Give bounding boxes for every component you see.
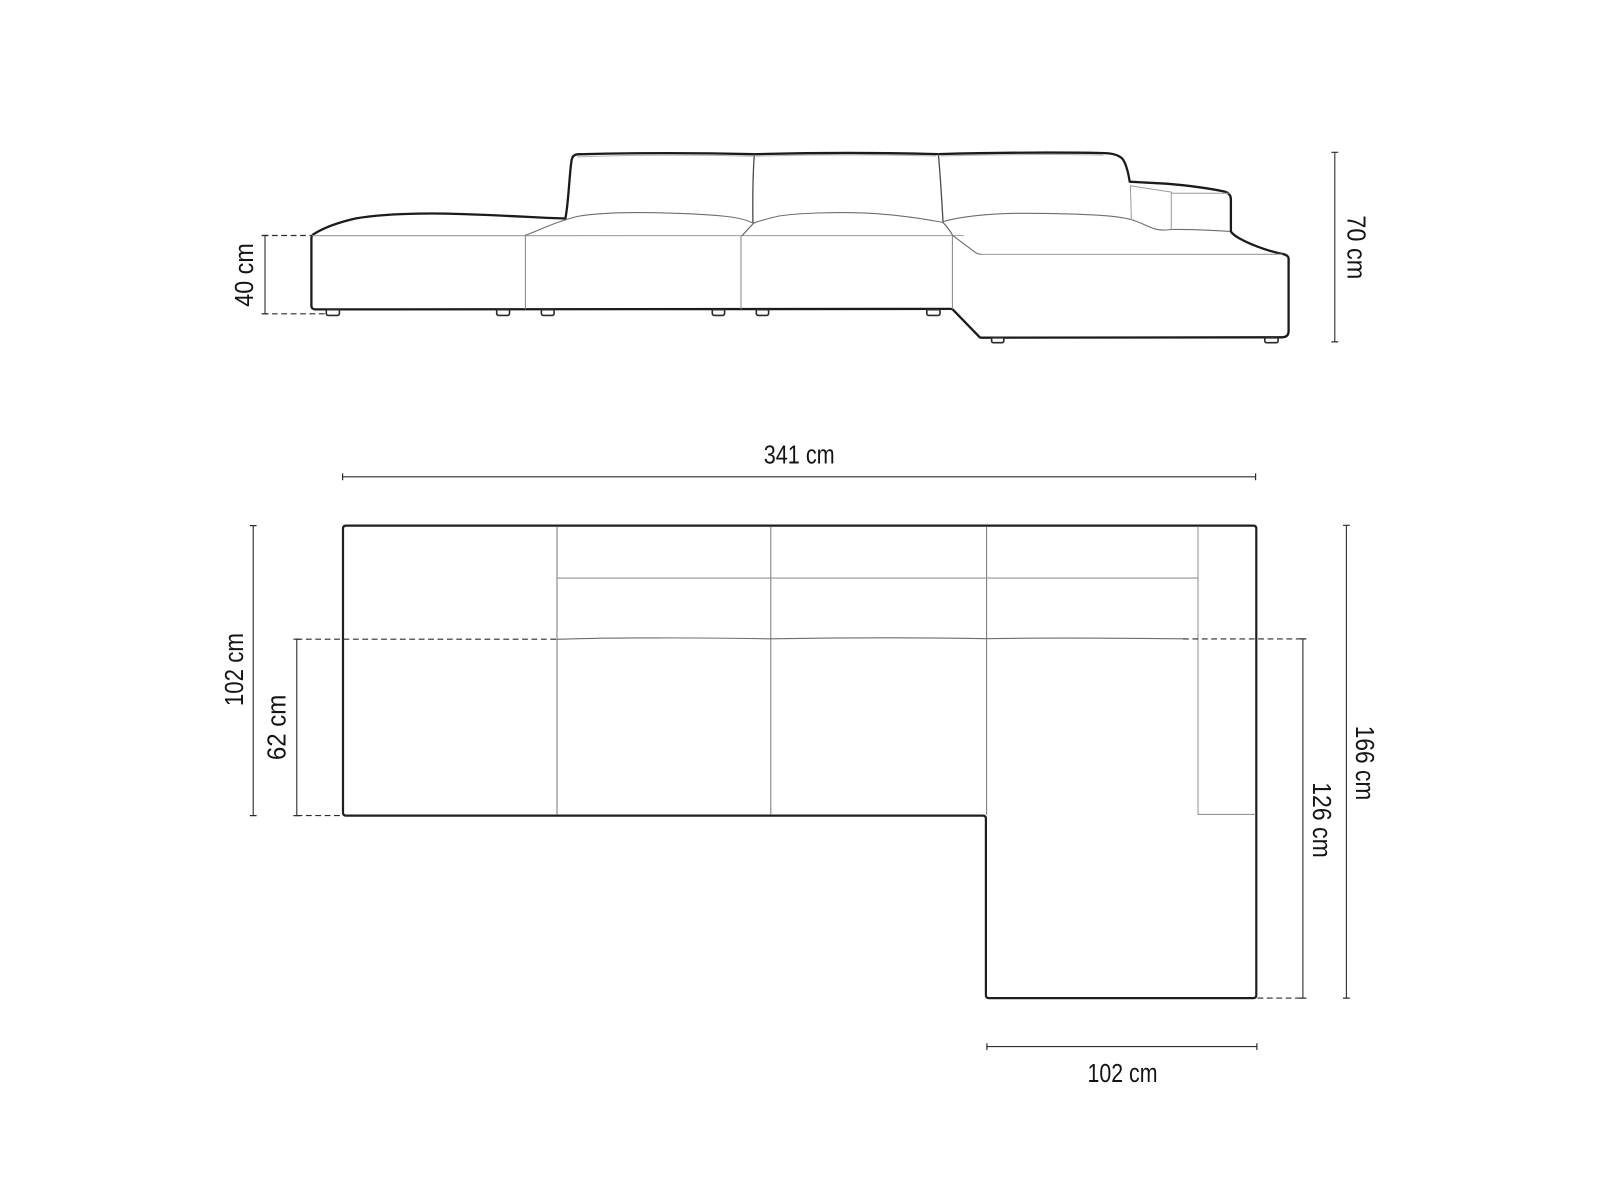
svg-text:341 cm: 341 cm [764, 442, 835, 470]
svg-text:62 cm: 62 cm [264, 695, 292, 761]
svg-text:70 cm: 70 cm [1342, 215, 1370, 279]
svg-text:126 cm: 126 cm [1307, 782, 1335, 858]
svg-text:166 cm: 166 cm [1350, 726, 1378, 801]
svg-text:102 cm: 102 cm [1088, 1060, 1158, 1088]
svg-text:40 cm: 40 cm [231, 243, 259, 307]
svg-text:102 cm: 102 cm [221, 633, 249, 706]
